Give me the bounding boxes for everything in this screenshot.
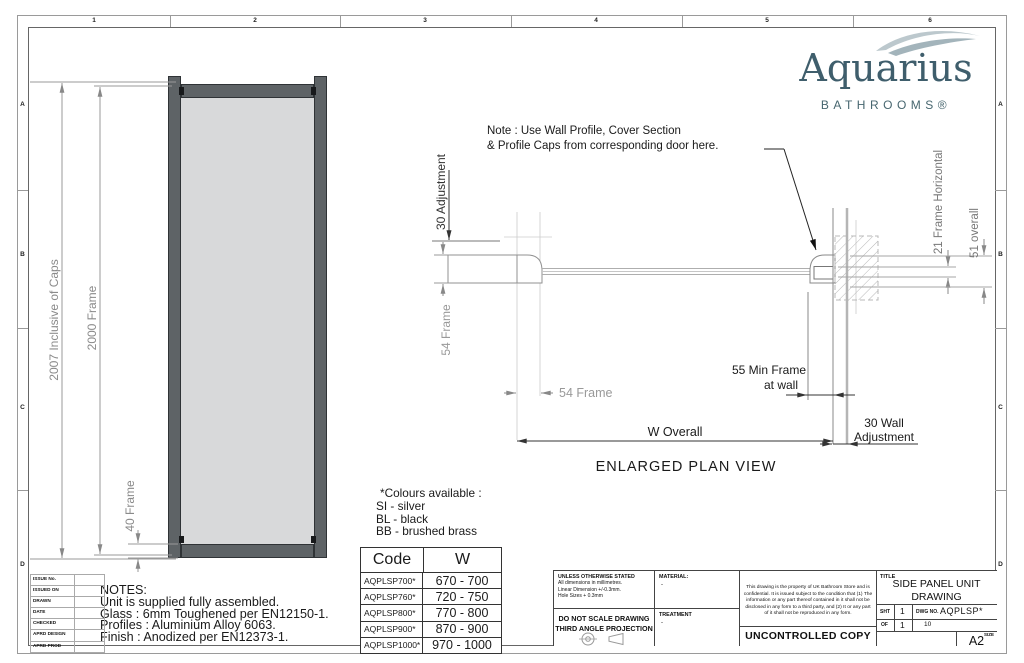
- dwg-no-label: DWG NO.: [916, 609, 939, 615]
- issue-table: ISSUE No. ISSUED ON DRAWN DATE CHECKED A…: [30, 574, 105, 653]
- title-block: UNLESS OTHERWISE STATED All dimensions i…: [553, 570, 997, 646]
- material-label: MATERIAL:: [659, 574, 688, 580]
- notes-line: Finish : Anodized per EN12373-1.: [100, 632, 329, 644]
- grid-row-d-left: D: [17, 561, 28, 568]
- table-row: AQPLSP760* 720 - 750: [361, 589, 501, 605]
- issue-no-value: 10: [924, 621, 931, 628]
- treatment-value: -: [661, 620, 663, 626]
- panel-glass: [181, 98, 314, 544]
- table-row: AQPLSP800* 770 - 800: [361, 605, 501, 621]
- confidential-note: This drawing is the property of UK Bathr…: [743, 585, 873, 618]
- of-value: 1: [900, 620, 905, 630]
- logo-subtitle: BATHROOMS®: [780, 98, 992, 112]
- table-row: AQPLSP700* 670 - 700: [361, 573, 501, 589]
- panel-top-rail: [181, 84, 314, 98]
- table-row: AQPLSP1000* 970 - 1000: [361, 638, 501, 653]
- notes-block: NOTES: Unit is supplied fully assembled.…: [100, 585, 329, 644]
- tolerance-note: UNLESS OTHERWISE STATED All dimensions i…: [558, 574, 652, 599]
- colours-title: *Colours available :: [376, 487, 482, 500]
- material-value: -: [661, 582, 663, 588]
- table-row: AQPLSP900* 870 - 900: [361, 622, 501, 638]
- grid-col-5: 5: [757, 17, 777, 24]
- grid-col-2: 2: [245, 17, 265, 24]
- treatment-label: TREATMENT: [659, 612, 692, 618]
- logo-name: Aquarius: [780, 46, 992, 90]
- panel-bottom-rail: [181, 544, 314, 558]
- colour-item: BB - brushed brass: [376, 525, 482, 538]
- grid-row-a-left: A: [17, 101, 28, 108]
- grid-row-c-left: C: [17, 404, 28, 411]
- grid-row-d-right: D: [995, 561, 1006, 568]
- grid-col-3: 3: [415, 17, 435, 24]
- third-angle-projection-icon: [576, 632, 632, 646]
- issue-row: ISSUED ON: [31, 586, 105, 597]
- logo: Aquarius BATHROOMS®: [780, 26, 992, 118]
- colour-item: SI - silver: [376, 500, 482, 513]
- size-table-header-code: Code: [361, 548, 424, 572]
- grid-col-4: 4: [586, 17, 606, 24]
- panel-right-post: [314, 76, 327, 558]
- issue-row: APRD DESIGN: [31, 630, 105, 641]
- panel-left-post: [168, 76, 181, 558]
- sht-value: 1: [900, 606, 905, 616]
- issue-row: ISSUE No.: [31, 575, 105, 586]
- grid-col-1: 1: [84, 17, 104, 24]
- of-label: OF: [881, 622, 888, 628]
- size-value: A2: [956, 634, 997, 648]
- grid-row-c-right: C: [995, 404, 1006, 411]
- grid-row-a-right: A: [995, 101, 1006, 108]
- drawing-title: SIDE PANEL UNIT DRAWING: [876, 578, 997, 603]
- do-not-scale: DO NOT SCALE DRAWING: [554, 614, 654, 623]
- grid-row-b-left: B: [17, 251, 28, 258]
- issue-row: DATE: [31, 608, 105, 619]
- size-table-header-w: W: [424, 548, 501, 572]
- size-table: Code W AQPLSP700* 670 - 700 AQPLSP760* 7…: [360, 547, 502, 654]
- dwg-no-value: AQPLSP*: [940, 606, 983, 616]
- uncontrolled-copy: UNCONTROLLED COPY: [740, 626, 876, 646]
- sht-label: SHT: [880, 609, 890, 615]
- grid-col-6: 6: [920, 17, 940, 24]
- grid-row-b-right: B: [995, 251, 1006, 258]
- colours-block: *Colours available : SI - silver BL - bl…: [376, 487, 482, 538]
- issue-row: APRD PROD: [31, 642, 105, 653]
- issue-row: CHECKED: [31, 619, 105, 630]
- issue-row: DRAWN: [31, 597, 105, 608]
- drawing-sheet: 1 2 3 4 5 6 A B C D A B C D Aquarius BAT…: [0, 0, 1024, 663]
